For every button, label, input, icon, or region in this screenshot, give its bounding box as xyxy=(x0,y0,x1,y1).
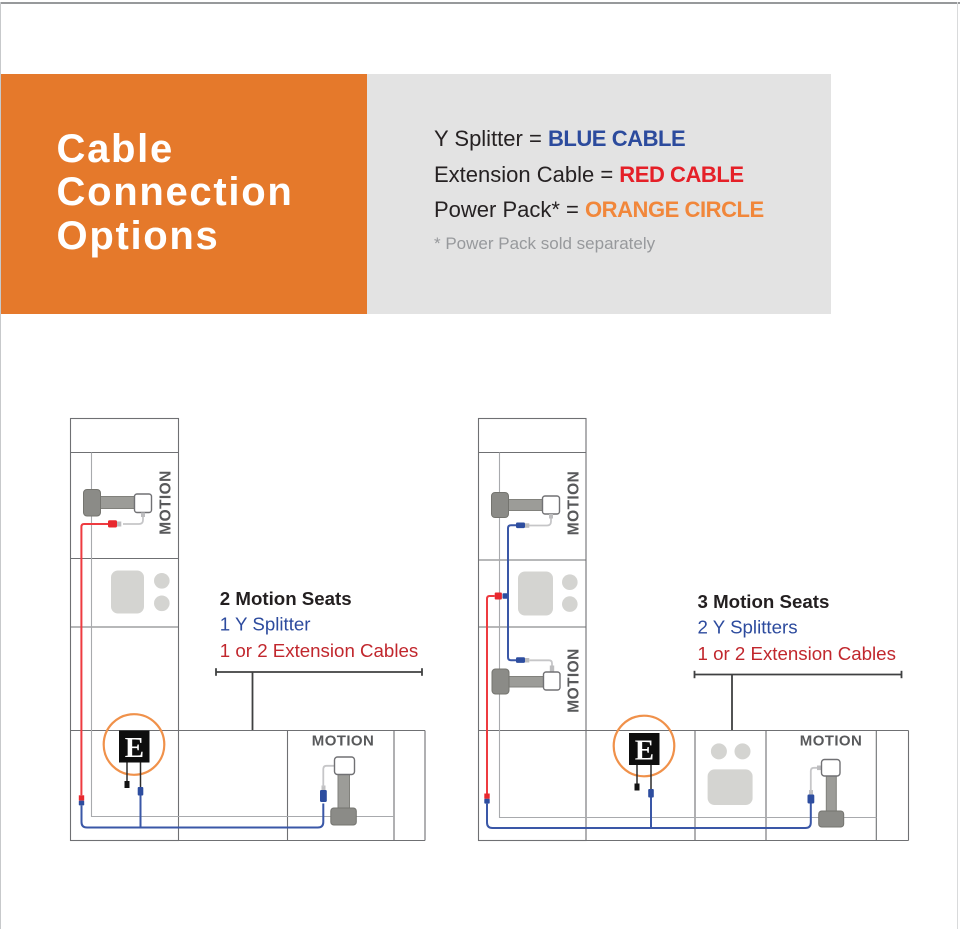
svg-text:3 Motion Seats: 3 Motion Seats xyxy=(698,591,830,612)
svg-text:MOTION: MOTION xyxy=(566,648,583,712)
svg-text:1 or 2 Extension Cables: 1 or 2 Extension Cables xyxy=(698,643,896,664)
svg-text:2 Motion Seats: 2 Motion Seats xyxy=(220,588,352,609)
svg-text:E: E xyxy=(635,735,654,767)
svg-text:MOTION: MOTION xyxy=(566,471,583,535)
svg-text:MOTION: MOTION xyxy=(800,733,862,750)
svg-text:2 Y Splitters: 2 Y Splitters xyxy=(698,617,798,638)
svg-text:E: E xyxy=(125,732,144,764)
svg-text:MOTION: MOTION xyxy=(312,733,374,750)
svg-text:MOTION: MOTION xyxy=(158,470,175,534)
svg-text:1 or 2 Extension Cables: 1 or 2 Extension Cables xyxy=(220,640,418,661)
svg-text:1 Y Splitter: 1 Y Splitter xyxy=(220,614,311,635)
